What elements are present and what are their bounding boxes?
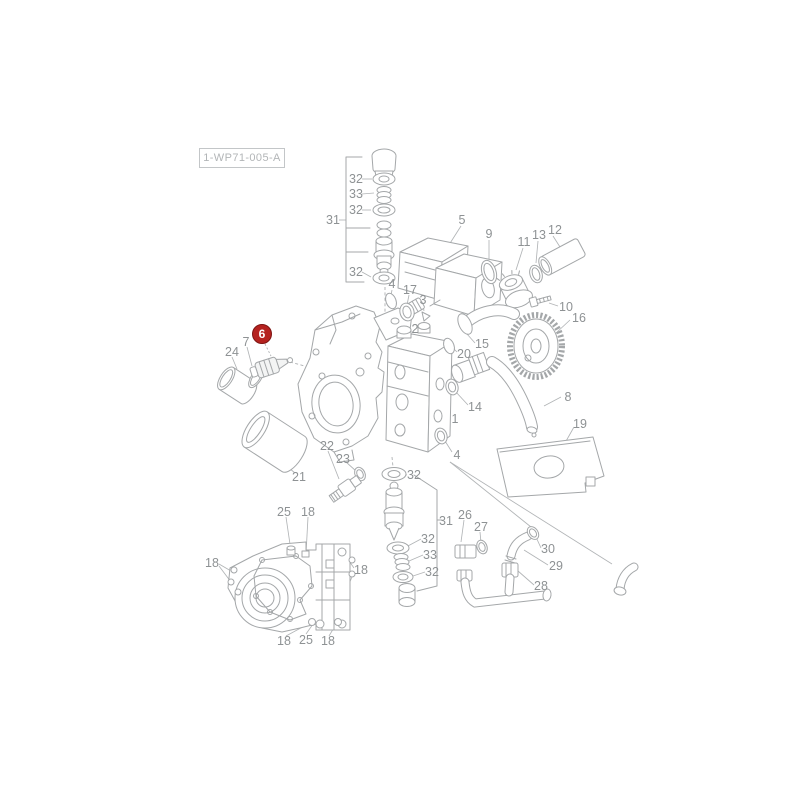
callout-10-10[interactable]: 10 bbox=[559, 300, 573, 314]
elbow-fitting-26 bbox=[455, 539, 489, 581]
callout-32-4[interactable]: 32 bbox=[349, 265, 363, 279]
o-ring-27 bbox=[475, 539, 489, 556]
callout-32-0[interactable]: 32 bbox=[349, 172, 363, 186]
callout-20-16[interactable]: 20 bbox=[457, 347, 471, 361]
callout-4-20[interactable]: 4 bbox=[454, 448, 461, 462]
highlighted-callout-number[interactable]: 6 bbox=[259, 327, 266, 341]
callout-18-42[interactable]: 18 bbox=[277, 634, 291, 648]
pressure-sensor-6[interactable] bbox=[249, 352, 295, 381]
callout-25-38[interactable]: 25 bbox=[277, 505, 291, 519]
callout-31-3[interactable]: 31 bbox=[326, 213, 340, 227]
callout-24-23[interactable]: 24 bbox=[225, 345, 239, 359]
hose-elbow-far-right bbox=[613, 567, 634, 596]
callout-12-9[interactable]: 12 bbox=[548, 223, 562, 237]
callout-28-37[interactable]: 28 bbox=[534, 579, 548, 593]
callout-31-29[interactable]: 31 bbox=[439, 514, 453, 528]
fitting-22 bbox=[327, 474, 362, 504]
callout-7-24[interactable]: 7 bbox=[243, 335, 250, 349]
suction-hose-15 bbox=[455, 310, 514, 336]
callout-9-6[interactable]: 9 bbox=[486, 227, 493, 241]
callout-2-15[interactable]: 2 bbox=[412, 322, 419, 336]
callout-5-5[interactable]: 5 bbox=[459, 213, 466, 227]
callout-13-8[interactable]: 13 bbox=[532, 228, 546, 242]
callout-16-11[interactable]: 16 bbox=[572, 311, 586, 325]
callout-8-21[interactable]: 8 bbox=[565, 390, 572, 404]
callout-15-17[interactable]: 15 bbox=[475, 337, 489, 351]
callout-32-30[interactable]: 32 bbox=[421, 532, 435, 546]
callout-29-36[interactable]: 29 bbox=[549, 559, 563, 573]
adapter-fittings bbox=[327, 466, 367, 504]
callout-14-18[interactable]: 14 bbox=[468, 400, 482, 414]
highlighted-callout-badge[interactable]: 6 bbox=[253, 325, 272, 344]
oil-filter-21 bbox=[237, 407, 313, 477]
callout-33-31[interactable]: 33 bbox=[423, 548, 437, 562]
sleeve-12 bbox=[536, 238, 586, 277]
callout-18-41[interactable]: 18 bbox=[354, 563, 368, 577]
ring-2 bbox=[391, 318, 399, 324]
callout-18-44[interactable]: 18 bbox=[321, 634, 335, 648]
wedge-3 bbox=[422, 312, 430, 321]
callout-18-39[interactable]: 18 bbox=[301, 505, 315, 519]
callout-1-19[interactable]: 1 bbox=[452, 412, 459, 426]
callout-18-40[interactable]: 18 bbox=[205, 556, 219, 570]
drive-gear bbox=[510, 315, 562, 377]
callout-33-1[interactable]: 33 bbox=[349, 187, 363, 201]
callout-25-43[interactable]: 25 bbox=[299, 633, 313, 647]
callout-27-34[interactable]: 27 bbox=[474, 520, 488, 534]
transmission-cover-assembly bbox=[228, 542, 355, 632]
callout-32-28[interactable]: 32 bbox=[407, 468, 421, 482]
callout-22-26[interactable]: 22 bbox=[320, 439, 334, 453]
callout-3-14[interactable]: 3 bbox=[420, 293, 427, 307]
gasket-plate-19 bbox=[497, 437, 604, 497]
parts-diagram-page: 1-WP71-005-A bbox=[0, 0, 800, 800]
callout-19-22[interactable]: 19 bbox=[573, 417, 587, 431]
callout-32-32[interactable]: 32 bbox=[425, 565, 439, 579]
exploded-parts-diagram: 3233323132591113121016417322015141481924… bbox=[0, 0, 800, 800]
callout-17-13[interactable]: 17 bbox=[403, 283, 417, 297]
valve-body bbox=[374, 237, 394, 274]
callout-32-2[interactable]: 32 bbox=[349, 203, 363, 217]
filter-group bbox=[214, 352, 312, 477]
callout-26-33[interactable]: 26 bbox=[458, 508, 472, 522]
callout-4-12[interactable]: 4 bbox=[389, 277, 396, 291]
callout-23-27[interactable]: 23 bbox=[336, 452, 350, 466]
callout-30-35[interactable]: 30 bbox=[541, 542, 555, 556]
callout-11-7[interactable]: 11 bbox=[518, 235, 531, 249]
callout-21-25[interactable]: 21 bbox=[292, 470, 306, 484]
o-ring-4a bbox=[384, 292, 399, 310]
